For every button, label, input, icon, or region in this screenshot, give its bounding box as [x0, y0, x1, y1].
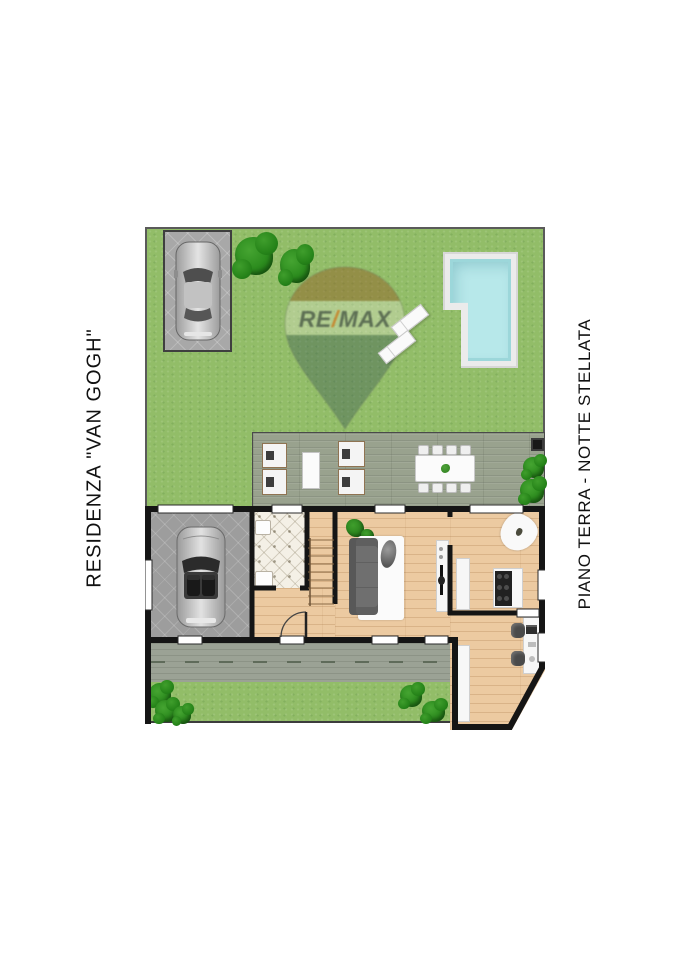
sofa [349, 538, 378, 615]
site-plan: RE/MAX [145, 227, 545, 730]
floor-plan-page: RESIDENZA "VAN GOGH" PIANO TERRA - NOTTE… [0, 0, 678, 960]
kitchen-counter [456, 558, 470, 610]
desk-item [529, 656, 535, 662]
office-chair [511, 623, 525, 638]
barbecue [531, 438, 544, 451]
hedge [235, 237, 273, 275]
dining-chair [446, 483, 457, 493]
decor-dot [439, 547, 443, 551]
lounger-pillow [266, 477, 274, 487]
decor-dot [439, 555, 443, 559]
lounger-pillow [266, 451, 274, 460]
rug-pattern [515, 527, 523, 536]
bathroom-toilet [255, 571, 273, 587]
kitchen-island [493, 568, 523, 608]
garage-car-icon [175, 525, 227, 629]
residence-title: RESIDENZA "VAN GOGH" [84, 328, 107, 587]
lounger-pillow [342, 477, 350, 487]
hedge [400, 685, 422, 707]
hedge [523, 457, 544, 478]
desk-item [528, 642, 536, 647]
deck-lounger [338, 469, 365, 495]
deck-lounger [262, 469, 287, 495]
deck-lounger [338, 441, 365, 467]
hedge [173, 706, 191, 724]
stove-icon [495, 571, 512, 606]
laptop-icon [526, 625, 537, 634]
bathroom-sink [255, 520, 271, 535]
tv-stand [438, 576, 445, 585]
desk [523, 617, 540, 674]
floor-title: PIANO TERRA - NOTTE STELLATA [575, 319, 595, 610]
watermark-max: MAX [339, 306, 393, 332]
dining-chair [418, 445, 429, 455]
watermark-re: RE [299, 306, 332, 332]
paved-path [151, 643, 455, 682]
parked-car-icon [174, 240, 222, 342]
lounger-pillow [342, 449, 350, 459]
dining-chair [460, 483, 471, 493]
wood-deck [252, 432, 545, 506]
office-chair [511, 651, 525, 666]
hedge [520, 479, 544, 503]
parking-space [163, 230, 232, 352]
deck-lounger [262, 443, 287, 468]
dining-chair [446, 445, 457, 455]
dining-chair [432, 483, 443, 493]
dining-chair [418, 483, 429, 493]
hedge [422, 701, 445, 722]
dining-chair [460, 445, 471, 455]
path-center-line [151, 661, 455, 663]
wardrobe [456, 645, 470, 722]
side-table [302, 452, 320, 489]
hallway [252, 588, 335, 640]
dining-chair [432, 445, 443, 455]
watermark-text: RE/MAX [299, 306, 393, 332]
